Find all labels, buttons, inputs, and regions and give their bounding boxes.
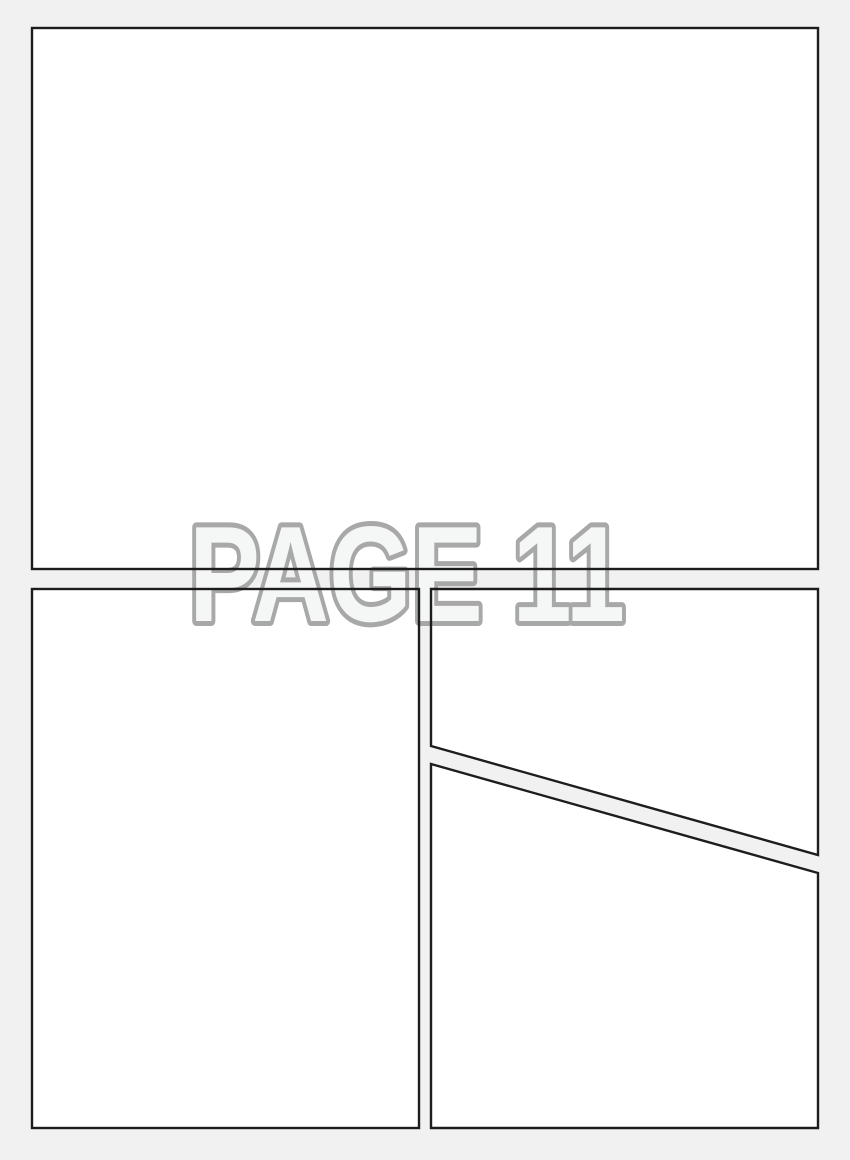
- page-number-watermark: PAGE 11: [189, 498, 625, 650]
- panel-top-fill: [32, 28, 818, 569]
- comic-page-template: PAGE 11: [0, 0, 850, 1160]
- panel-bottom-left-fill: [32, 589, 419, 1128]
